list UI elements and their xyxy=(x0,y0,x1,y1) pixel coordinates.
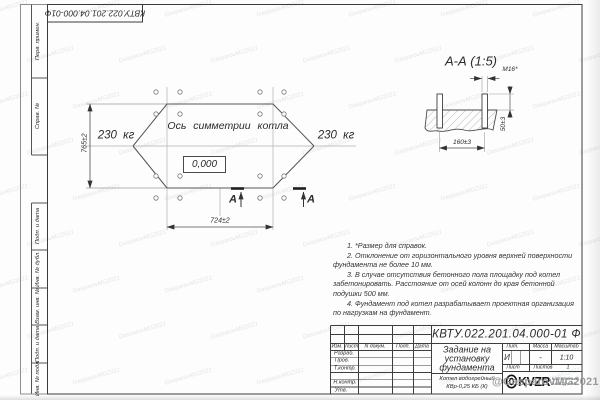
watermark-tile: GasparovMG2021 xyxy=(0,275,29,294)
watermark-tile: GasparovMG2021 xyxy=(0,367,29,386)
section-dim-160: 160±3 xyxy=(453,140,471,147)
col-list: Лист xyxy=(345,344,358,349)
technical-notes: 1. *Размер для справок. 2. Отклонение от… xyxy=(333,241,581,318)
watermark-tile: GasparovMG2021 xyxy=(118,229,167,248)
mass-label: Масса xyxy=(533,344,548,349)
watermark-tile: GasparovMG2021 xyxy=(532,0,581,19)
watermark-tile: GasparovMG2021 xyxy=(302,45,351,64)
watermark-tile: GasparovMG2021 xyxy=(26,229,75,248)
product-name-line-1: Котел водогрейный xyxy=(439,377,494,383)
watermark-tile: GasparovMG2021 xyxy=(0,0,29,19)
watermark-tile: GasparovMG2021 xyxy=(486,137,535,156)
note-1: 1. *Размер для справок. xyxy=(333,241,581,251)
plan-section-letter-right: А xyxy=(307,195,315,206)
watermark-tile: GasparovMG2021 xyxy=(440,91,489,110)
plan-dim-724: 724±2 xyxy=(210,218,229,225)
doc-title-line-3: фундамента xyxy=(439,364,494,373)
section-title: А-А (1:5) xyxy=(445,55,497,68)
watermark-tile: GasparovMG2021 xyxy=(210,229,259,248)
watermark-tile: GasparovMG2021 xyxy=(164,0,213,19)
watermark-tile: GasparovMG2021 xyxy=(72,91,121,110)
col-izm: Изм. xyxy=(331,344,342,349)
row-utv: Утв. xyxy=(335,388,348,394)
watermark-tile: GasparovMG2021 xyxy=(532,183,581,202)
lit-value: И xyxy=(504,354,510,362)
row-razrab: Разраб. xyxy=(334,351,354,357)
watermark-tile: GasparovMG2021 xyxy=(72,183,121,202)
row-t-kontr: Т.контр. xyxy=(334,366,356,372)
plan-weight-left-label: 230 кг xyxy=(98,130,134,142)
watermark-tile: GasparovMG2021 xyxy=(0,91,29,110)
plan-elevation-mark: 0,000 xyxy=(183,156,226,173)
plan-symmetry-axis-label: Ось симметрии котла xyxy=(167,121,288,132)
anchor-bolt-circles xyxy=(154,90,286,200)
note-4: 4. Фундамент под котел разрабатывает про… xyxy=(333,299,581,318)
watermark-tile: GasparovMG2021 xyxy=(394,137,443,156)
watermark-tile: GasparovMG2021 xyxy=(72,275,121,294)
watermark-tile: GasparovMG2021 xyxy=(118,45,167,64)
margin-cell-inv-dubl: Инв. № дубл. xyxy=(36,251,42,287)
watermark-tile: GasparovMG2021 xyxy=(256,0,305,19)
section-bolt-thread-label: М16* xyxy=(502,67,517,74)
watermark-tile: GasparovMG2021 xyxy=(256,367,305,386)
margin-cell-vzam-inv: Взам. инв. № xyxy=(36,288,42,324)
watermark-tile: GasparovMG2021 xyxy=(26,321,75,340)
watermark-tile: GasparovMG2021 xyxy=(26,137,75,156)
margin-cell-inv-podl: Инв. № подл. xyxy=(36,360,42,396)
section-dim-50: 50±3 xyxy=(501,117,508,131)
watermark-tile: GasparovMG2021 xyxy=(440,0,489,19)
note-3: 3. В случае отсутствия бетонного пола пл… xyxy=(333,270,581,299)
watermark-tile: GasparovMG2021 xyxy=(118,321,167,340)
watermark-tile: GasparovMG2021 xyxy=(532,91,581,110)
product-name-line-2: КВр-0,25 КБ (К) xyxy=(446,385,487,391)
watermark-tile: GasparovMG2021 xyxy=(256,91,305,110)
watermark-tile: GasparovMG2021 xyxy=(256,275,305,294)
watermark-tile: GasparovMG2021 xyxy=(348,0,397,19)
watermark-tile: GasparovMG2021 xyxy=(256,183,305,202)
sheets-value: 1 xyxy=(566,365,569,371)
mass-value: - xyxy=(539,354,542,362)
col-podp: Подп. xyxy=(396,344,410,349)
watermark-tile: GasparovMG2021 xyxy=(72,367,121,386)
watermark-tile: GasparovMG2021 xyxy=(302,321,351,340)
row-n-kontr: Н.контр. xyxy=(333,381,356,387)
watermark-tile: GasparovMG2021 xyxy=(394,45,443,64)
watermark-tile: GasparovMG2021 xyxy=(26,45,75,64)
watermark-signature: @GasparovMG2021 xyxy=(492,376,599,388)
scale-value: 1:10 xyxy=(560,354,574,361)
watermark-tile: GasparovMG2021 xyxy=(348,91,397,110)
scan-edge-right xyxy=(586,0,600,400)
lit-label: Лит. xyxy=(506,344,518,349)
watermark-tile: GasparovMG2021 xyxy=(210,45,259,64)
plan-dim-765: 765±2 xyxy=(82,133,89,152)
scan-edge-bottom xyxy=(0,395,600,400)
plan-weight-right-label: 230 кг xyxy=(318,130,354,142)
row-prov: Пров. xyxy=(335,359,350,365)
sheet-label: Лист xyxy=(506,365,519,370)
scale-label: Масштаб xyxy=(554,344,578,349)
watermark-tile: GasparovMG2021 xyxy=(164,183,213,202)
section-cut-marks xyxy=(231,189,306,208)
watermark-tile: GasparovMG2021 xyxy=(210,321,259,340)
margin-cell-podp-data-2: Подп. и дата xyxy=(36,326,42,362)
col-data: Дата xyxy=(415,344,429,349)
watermark-tile: GasparovMG2021 xyxy=(0,183,29,202)
note-2: 2. Отклонение от горизонтального уровня … xyxy=(333,251,581,270)
watermark-tile: GasparovMG2021 xyxy=(164,275,213,294)
margin-cell-sprav-no: Справ. № xyxy=(36,103,42,129)
watermark-tile: GasparovMG2021 xyxy=(164,91,213,110)
watermark-tile: GasparovMG2021 xyxy=(348,183,397,202)
watermark-tile: GasparovMG2021 xyxy=(210,137,259,156)
plan-section-letter-left: А xyxy=(229,195,237,206)
margin-cell-podp-data-1: Подп. и дата xyxy=(36,208,42,244)
drawing-sheet: GasparovMG2021GasparovMG2021GasparovMG20… xyxy=(0,0,600,400)
margin-cell-perv-primen: Перв. примен. xyxy=(36,22,42,61)
watermark-tile: GasparovMG2021 xyxy=(440,183,489,202)
col-n-dokum: N докум. xyxy=(365,344,386,349)
title-block-doc-number: КВТУ.022.201.04.000-01 Ф xyxy=(432,329,581,341)
watermark-tile: GasparovMG2021 xyxy=(164,367,213,386)
doc-number-stamp-rotated: КВТУ.022.201.04.000-01Ф xyxy=(45,9,146,18)
sheets-label: Листов xyxy=(534,365,553,370)
